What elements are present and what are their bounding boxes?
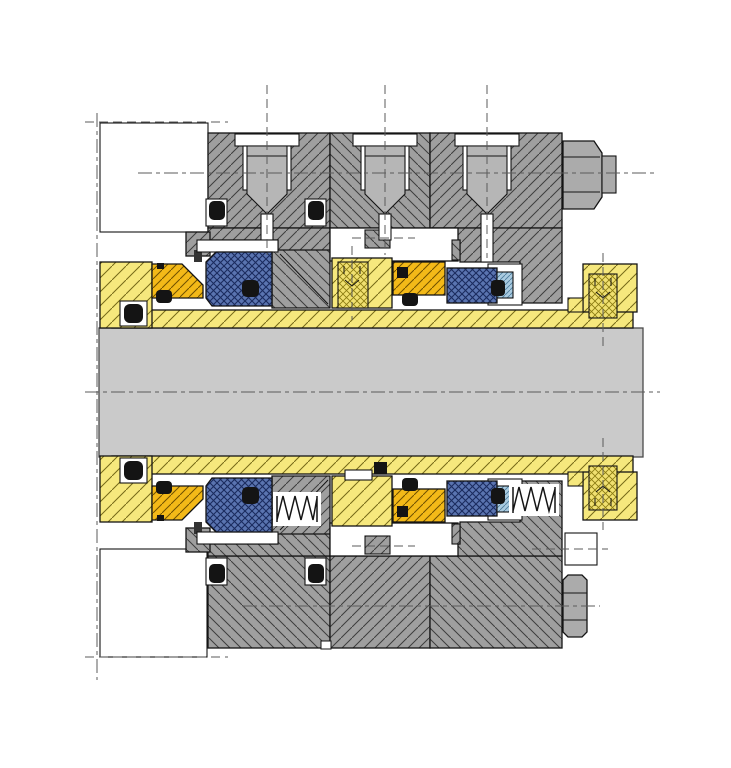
drive-pin-upper [452,240,460,260]
cavity-lower [330,523,458,556]
housing-bore-lower [100,549,207,657]
stud-end [602,156,616,193]
spring-retainer [197,532,278,544]
housing-bore-upper [100,123,208,232]
drawing-canvas [0,0,731,768]
drive-key [374,462,387,474]
drive-pin-lower [452,524,460,544]
drive-key [397,267,408,278]
oring [209,564,225,583]
oring [402,293,418,306]
gland-stud-nut [563,141,616,209]
oring [124,461,143,480]
oring [156,481,172,494]
oring [491,488,505,504]
seal-face-ring [206,252,272,306]
oring [242,487,259,504]
seal-face-ring [447,268,497,303]
oring [308,564,324,583]
sleeve-band-upper [112,310,633,328]
oring [242,280,259,297]
drive-key [397,506,408,517]
seal-face-ring [447,481,497,516]
coil-spring-1 [273,492,321,526]
gland-wedge-upper [272,250,330,308]
oring [209,201,225,220]
drive-key [157,515,164,521]
coil-spring-2 [509,484,559,516]
oring [402,478,418,491]
oring [156,290,172,303]
clamp-step-lower [365,536,390,554]
oring [308,201,324,220]
setting-block [332,476,392,526]
seal-face-ring [206,478,272,532]
drive-key [157,263,164,269]
gland-plate-outboard-lower [430,556,562,648]
oring [124,304,143,323]
gland-plate-center-lower [330,556,430,648]
lock-ring [393,262,445,295]
oring [491,280,505,296]
spring-retainer [197,240,278,252]
lock-ring [393,489,445,522]
seal-stage2-upper [332,258,522,308]
joint-notch [321,641,331,649]
cavity-upper [330,228,458,261]
seal-cross-section-svg [0,0,731,768]
setting-notch [345,470,372,480]
